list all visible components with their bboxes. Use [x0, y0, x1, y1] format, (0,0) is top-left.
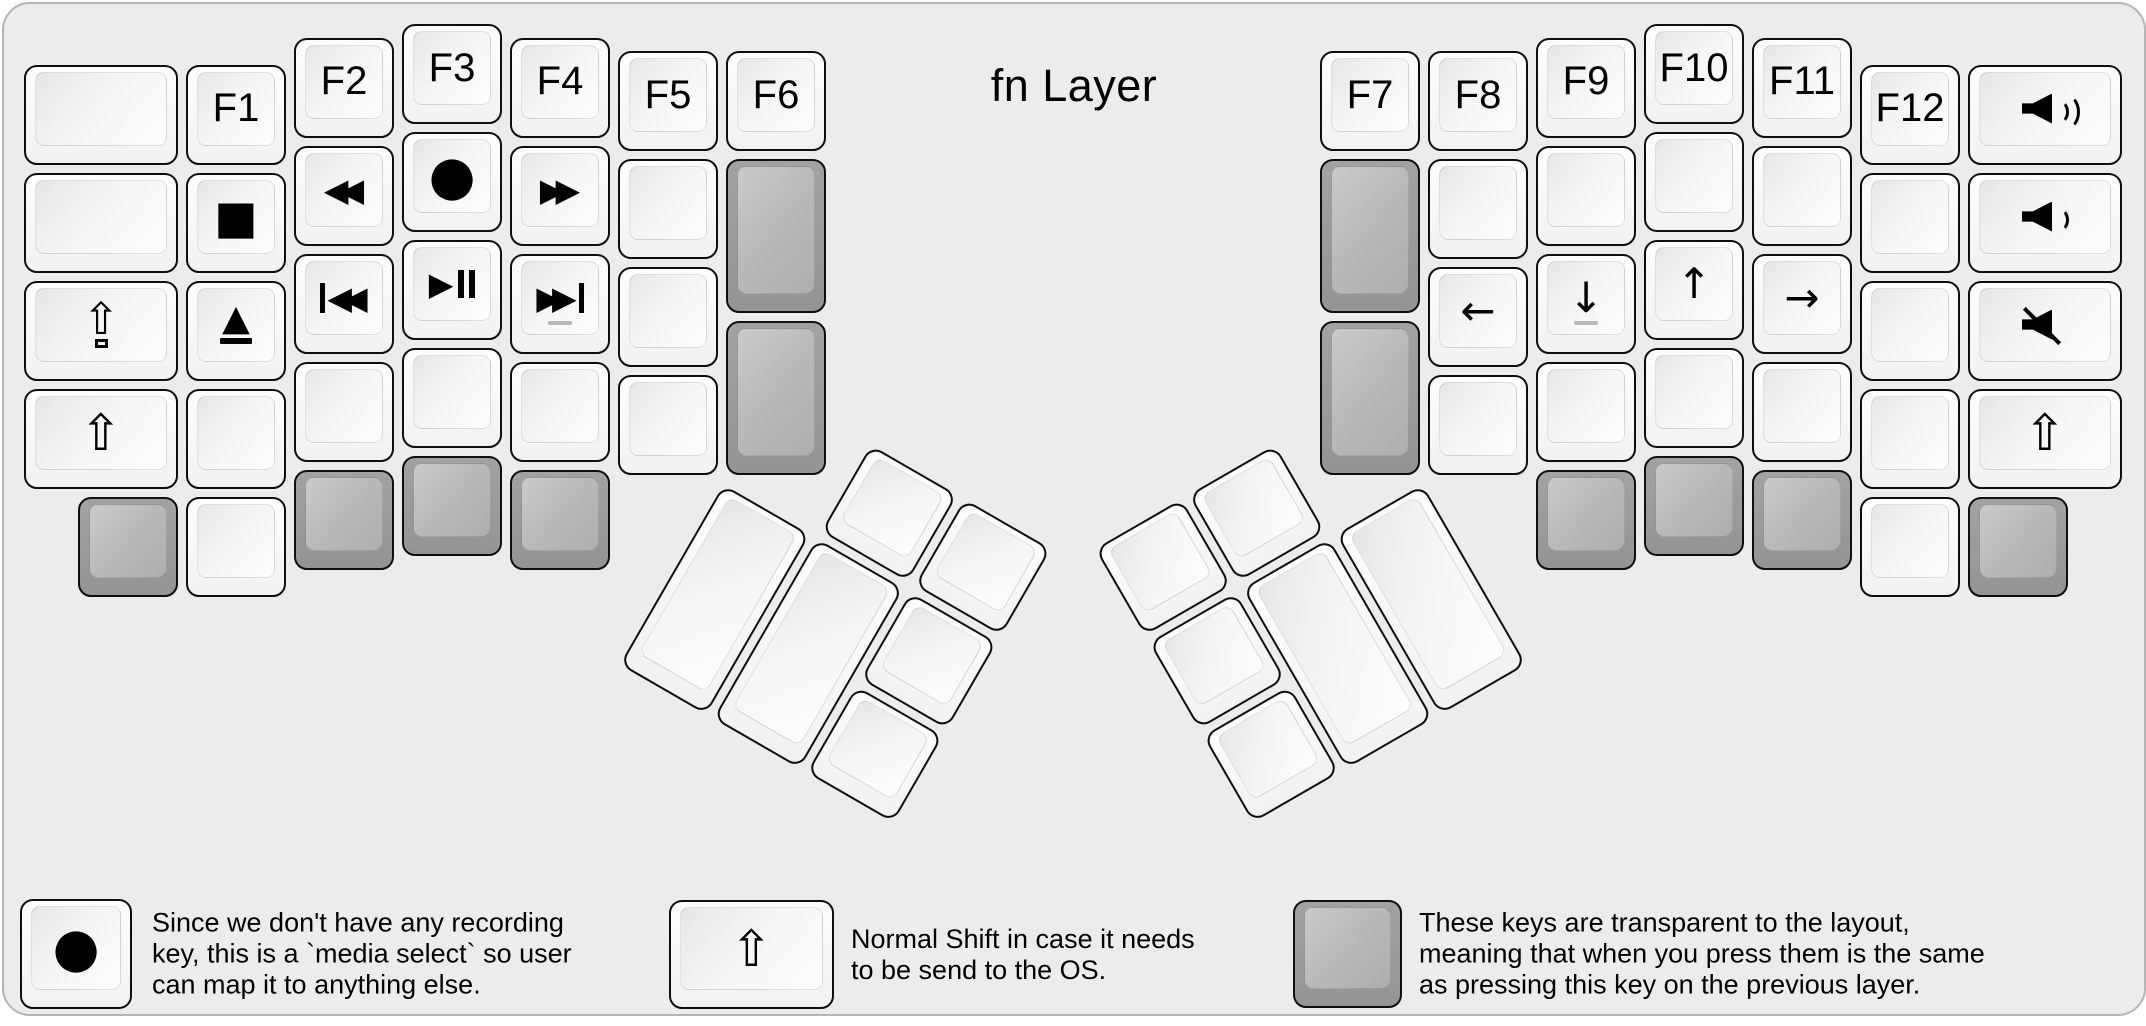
key-play-pause: ▶	[402, 240, 502, 340]
keycap-top: ◀◀	[305, 261, 383, 335]
keycap-top	[1763, 153, 1841, 227]
key-transparent	[1644, 456, 1744, 556]
keycap-top	[840, 456, 945, 559]
key-blank	[1428, 159, 1528, 259]
keycap-top	[1979, 72, 2111, 146]
legend-line: Since we don't have any recording	[152, 908, 572, 939]
caps-lock-icon: ⇧	[83, 301, 120, 348]
fast-forward-icon: ▶▶	[540, 174, 580, 206]
key-label: F5	[645, 73, 692, 118]
record-icon: ●	[428, 149, 475, 203]
keycap-top: ←	[1439, 274, 1517, 348]
keycap-top	[1216, 698, 1321, 801]
eject-icon: ▲	[220, 305, 252, 344]
keycap-top: ■	[197, 180, 275, 254]
keycap-top: F9	[1547, 45, 1625, 119]
legend-line: These keys are transparent to the layout…	[1419, 908, 1985, 939]
keycap-top	[1655, 139, 1733, 213]
keycap-top	[1655, 463, 1733, 537]
key-blank	[1536, 362, 1636, 462]
key-fast-forward: ▶▶	[510, 146, 610, 246]
legend-transparent-keys-text: These keys are transparent to the layout…	[1419, 908, 1985, 1001]
key-f8: F8	[1428, 51, 1528, 151]
keycap-top	[197, 504, 275, 578]
key-transparent	[726, 321, 826, 475]
keycap-top: F8	[1439, 58, 1517, 132]
legend-media-select-key: ●	[20, 899, 132, 1009]
key-rewind: ◀◀	[294, 146, 394, 246]
keycap-top: ●	[31, 906, 121, 990]
key-blank	[1860, 497, 1960, 597]
key-f11: F11	[1752, 38, 1852, 138]
arrow-right-icon: →	[1784, 277, 1819, 319]
arrow-up-icon: ↑	[1676, 263, 1711, 305]
keycap-top	[1108, 510, 1213, 613]
keycap-top: F12	[1871, 72, 1949, 146]
key-transparent	[1320, 159, 1420, 313]
keycap-top	[737, 166, 815, 294]
key-stop: ■	[186, 173, 286, 273]
key-transparent	[510, 470, 610, 570]
legend-line: key, this is a `media select` so user	[152, 939, 572, 970]
key-arrow-down: ↓	[1536, 254, 1636, 354]
key-f2: F2	[294, 38, 394, 138]
key-blank	[618, 375, 718, 475]
next-track-icon: ▶▶	[536, 282, 583, 314]
key-f1: F1	[186, 65, 286, 165]
keycap-top	[521, 369, 599, 443]
key-blank	[1536, 146, 1636, 246]
keycap-top: ▶▶	[521, 153, 599, 227]
key-label: F8	[1455, 73, 1502, 118]
keycap-top	[1547, 153, 1625, 227]
keycap-top: ●	[413, 139, 491, 213]
keycap-top: F1	[197, 72, 275, 146]
key-blank	[1644, 132, 1744, 232]
key-blank	[1644, 348, 1744, 448]
keycap-top: ⇧	[680, 907, 823, 990]
keycap-top: ⇧	[35, 288, 167, 362]
key-shift: ⇧	[24, 389, 178, 489]
key-blank	[618, 159, 718, 259]
key-arrow-up: ↑	[1644, 240, 1744, 340]
key-blank	[1428, 375, 1528, 475]
keycap-top	[1871, 504, 1949, 578]
keycap-top	[1547, 477, 1625, 551]
keycap-top: ▶▶	[521, 261, 599, 335]
keycap-top	[934, 510, 1039, 613]
play-pause-icon: ▶	[429, 268, 476, 300]
key-blank	[1752, 362, 1852, 462]
keycap-top: ↑	[1655, 247, 1733, 321]
keycap-top	[1331, 328, 1409, 456]
key-blank	[294, 362, 394, 462]
keycap-top	[1763, 369, 1841, 443]
key-label: F10	[1660, 46, 1729, 91]
legend-normal-shift-key: ⇧	[669, 900, 834, 1009]
keycap-top: ⇧	[35, 396, 167, 470]
key-blank	[1752, 146, 1852, 246]
page: fn Layer ⇧⇧F1■▲F2◀◀◀◀F3●▶F4▶▶▶▶F5F6F7F8←…	[0, 0, 2146, 1026]
key-transparent	[294, 470, 394, 570]
keycap-top	[35, 180, 167, 254]
mute-icon	[2016, 304, 2074, 346]
key-blank	[1860, 389, 1960, 489]
keycap-top: F5	[629, 58, 707, 132]
key-blank	[186, 389, 286, 489]
key-transparent	[726, 159, 826, 313]
keycap-top	[1979, 504, 2057, 578]
keycap-top	[89, 504, 167, 578]
legend-media-select-text: Since we don't have any recordingkey, th…	[152, 908, 572, 1001]
arrow-left-icon: ←	[1460, 290, 1495, 332]
key-label: F7	[1347, 73, 1394, 118]
key-transparent	[1752, 470, 1852, 570]
key-transparent	[402, 456, 502, 556]
keycap-top	[826, 698, 931, 801]
keycap-top	[1162, 604, 1267, 707]
keycap-top	[1763, 477, 1841, 551]
keycap-top	[1871, 396, 1949, 470]
keycap-top	[35, 72, 167, 146]
key-label: F6	[753, 73, 800, 118]
legend-line: meaning that when you press them is the …	[1419, 939, 1985, 970]
key-volume-down	[1968, 173, 2122, 273]
key-f7: F7	[1320, 51, 1420, 151]
keycap-top: ▶	[413, 247, 491, 321]
keycap-top	[737, 328, 815, 456]
keycap-top	[305, 477, 383, 551]
keycap-top	[1304, 907, 1391, 989]
key-label: F2	[321, 59, 368, 104]
shift-icon: ⇧	[731, 924, 773, 974]
keycap-top	[1979, 180, 2111, 254]
key-eject: ▲	[186, 281, 286, 381]
key-arrow-left: ←	[1428, 267, 1528, 367]
key-f10: F10	[1644, 24, 1744, 124]
legend-line: Normal Shift in case it needs	[851, 924, 1195, 955]
keycap-top: F3	[413, 31, 491, 105]
keycap-top	[629, 274, 707, 348]
keycap-top: F4	[521, 45, 599, 119]
keycap-top: ⇧	[1979, 396, 2111, 470]
keycap-top: ▲	[197, 288, 275, 362]
volume-up-icon	[2016, 88, 2074, 130]
key-label: F3	[429, 46, 476, 91]
stop-icon: ■	[214, 194, 257, 240]
key-blank	[510, 362, 610, 462]
key-label: F4	[537, 59, 584, 104]
keycap-top: F10	[1655, 31, 1733, 105]
keycap-top	[413, 463, 491, 537]
key-f6: F6	[726, 51, 826, 151]
keycap-top	[1547, 369, 1625, 443]
key-transparent	[1536, 470, 1636, 570]
keycap-top	[1439, 382, 1517, 456]
keycap-top	[1331, 166, 1409, 294]
record-icon: ●	[52, 921, 99, 975]
key-f12: F12	[1860, 65, 1960, 165]
key-blank	[24, 65, 178, 165]
key-label: F12	[1876, 86, 1945, 131]
volume-down-icon	[2016, 196, 2074, 238]
key-transparent	[1968, 497, 2068, 597]
key-caps-lock: ⇧	[24, 281, 178, 381]
keycap-top: →	[1763, 261, 1841, 335]
key-record: ●	[402, 132, 502, 232]
legend-transparent-keys-key	[1293, 900, 1402, 1008]
key-mute	[1968, 281, 2122, 381]
shift-icon: ⇧	[2024, 408, 2066, 458]
previous-track-icon: ◀◀	[320, 282, 367, 314]
arrow-down-icon: ↓	[1568, 277, 1603, 319]
key-shift: ⇧	[1968, 389, 2122, 489]
keycap-top	[629, 382, 707, 456]
keyboard-canvas: fn Layer ⇧⇧F1■▲F2◀◀◀◀F3●▶F4▶▶▶▶F5F6F7F8←…	[2, 2, 2146, 1016]
keycap-top	[1655, 355, 1733, 429]
keycap-top	[1979, 288, 2111, 362]
key-prev-track: ◀◀	[294, 254, 394, 354]
key-next-track: ▶▶	[510, 254, 610, 354]
key-blank	[24, 173, 178, 273]
keycap-top	[1201, 456, 1306, 559]
keycap-top	[305, 369, 383, 443]
key-transparent	[78, 497, 178, 597]
keycap-top: F11	[1763, 45, 1841, 119]
keycap-top	[1871, 288, 1949, 362]
key-label: F11	[1769, 59, 1835, 104]
key-arrow-right: →	[1752, 254, 1852, 354]
key-transparent	[1320, 321, 1420, 475]
key-f4: F4	[510, 38, 610, 138]
keycap-top	[1871, 180, 1949, 254]
keycap-top: F2	[305, 45, 383, 119]
keycap-top: F7	[1331, 58, 1409, 132]
keycap-top	[521, 477, 599, 551]
key-volume-up	[1968, 65, 2122, 165]
shift-icon: ⇧	[80, 408, 122, 458]
rewind-icon: ◀◀	[324, 174, 364, 206]
legend-line: as pressing this key on the previous lay…	[1419, 970, 1985, 1001]
keycap-top	[413, 355, 491, 429]
key-blank	[402, 348, 502, 448]
legend-normal-shift-text: Normal Shift in case it needsto be send …	[851, 924, 1195, 986]
keycap-top	[197, 396, 275, 470]
legend-line: can map it to anything else.	[152, 970, 572, 1001]
key-blank	[618, 267, 718, 367]
key-blank	[1860, 173, 1960, 273]
keycap-top	[880, 604, 985, 707]
key-label: F9	[1563, 59, 1610, 104]
key-blank	[1860, 281, 1960, 381]
keycap-top: ◀◀	[305, 153, 383, 227]
key-f9: F9	[1536, 38, 1636, 138]
keycap-top	[629, 166, 707, 240]
key-f5: F5	[618, 51, 718, 151]
key-f3: F3	[402, 24, 502, 124]
key-label: F1	[213, 86, 260, 131]
keycap-top	[1439, 166, 1517, 240]
key-blank	[186, 497, 286, 597]
keycap-top: ↓	[1547, 261, 1625, 335]
keycap-top: F6	[737, 58, 815, 132]
legend-line: to be send to the OS.	[851, 955, 1195, 986]
